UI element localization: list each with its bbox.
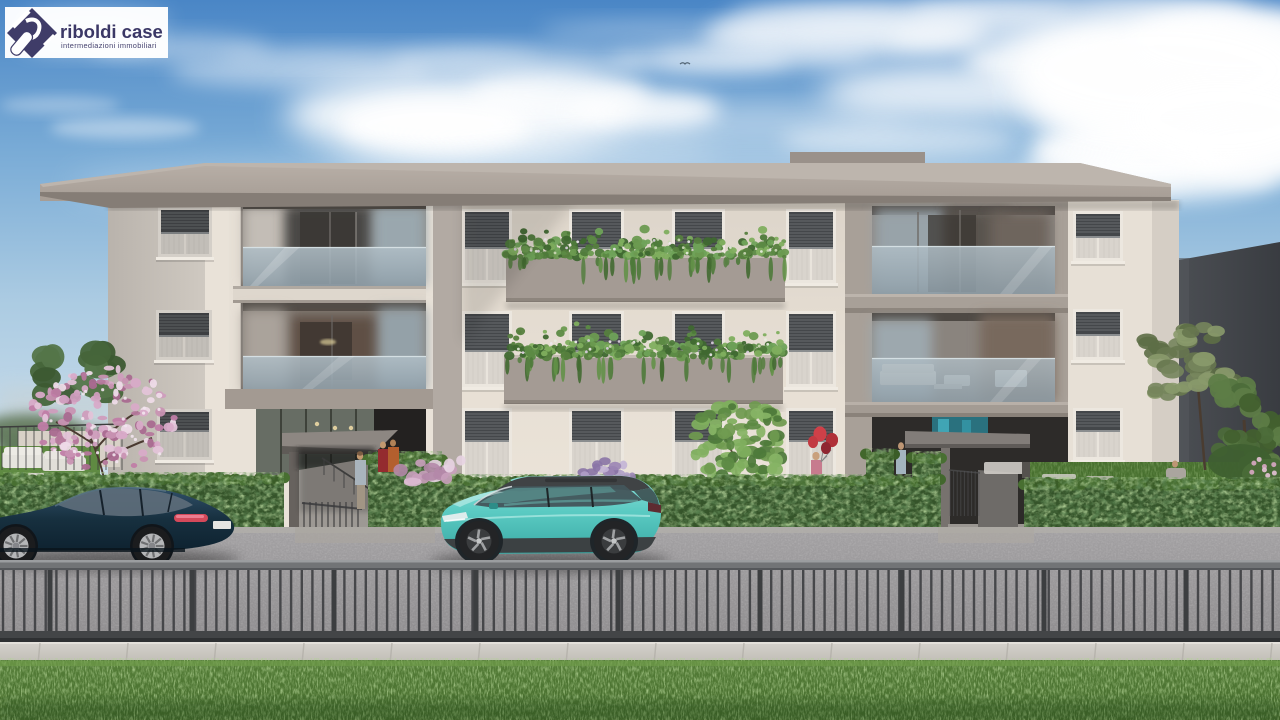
svg-text:intermediazioni immobiliari: intermediazioni immobiliari — [61, 41, 157, 50]
svg-text:riboldi case: riboldi case — [60, 21, 163, 42]
